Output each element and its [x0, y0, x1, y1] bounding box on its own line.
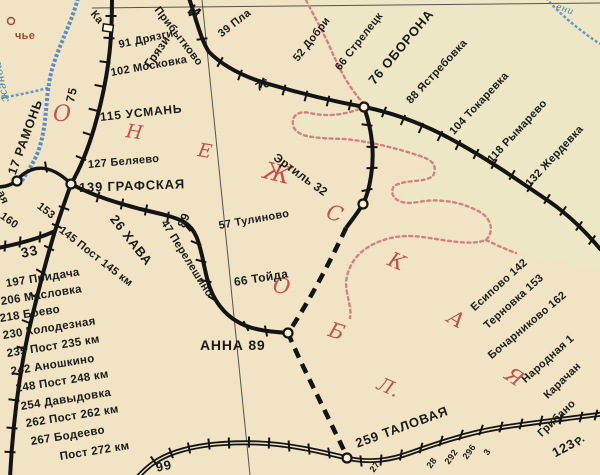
railway-map: ОНЕЖСКАЯОБЛ.чьеронежениПрибытковоИКаГряз… [0, 0, 600, 475]
station-label: 132 Жердевка [524, 124, 586, 189]
oblast-letter: Л. [374, 375, 402, 401]
km-marker: 89 [175, 211, 192, 229]
direction-label: И [184, 3, 204, 23]
oblast-letter: Б [326, 320, 347, 345]
station-label: 26 ХАВА [108, 212, 155, 267]
km-marker: 3 [482, 448, 492, 458]
station-label: 127 Беляево [88, 154, 160, 171]
station-label: 17 РАМОНЬ [6, 98, 45, 177]
km-marker: 28 [425, 456, 438, 470]
station-label: 39 Пла [217, 8, 254, 40]
km-marker: 160 [0, 211, 20, 231]
station-label: Карачан [542, 361, 583, 401]
oblast-letter: К [385, 249, 408, 275]
km-marker: 76 [253, 76, 272, 93]
station-label: 52 Добри [292, 16, 333, 64]
station-label: АННА 89 [200, 338, 266, 352]
km-marker: 292 [443, 448, 460, 466]
station-label: 139 ГРАФСКАЯ [79, 177, 185, 194]
oblast-letter: С [324, 202, 346, 227]
station-label: 88 Ястребовка [405, 38, 470, 106]
km-marker: 27 [368, 460, 381, 474]
oblast-letter: О [53, 104, 71, 126]
station-label: Грибано [536, 398, 578, 439]
km-marker: 99 [155, 458, 173, 474]
station-label: 118 Рымарево [486, 98, 550, 165]
station-label: 115 УСМАНЬ [99, 102, 182, 123]
km-marker: 123 [550, 436, 577, 459]
km-marker: 296 [461, 443, 478, 461]
direction-label: Ка [88, 9, 105, 26]
station-label: 259 ТАЛОВАЯ [354, 404, 450, 450]
km-marker: 33 [20, 243, 40, 260]
settlement-label: чье [15, 31, 35, 42]
oblast-letter: Н [125, 122, 144, 143]
oblast-letter: А [444, 306, 468, 332]
station-label: 104 Токаревка [448, 71, 511, 138]
station-label: 47 Перелешино [158, 219, 214, 300]
station-label: Пост 272 км [59, 441, 130, 463]
river-label: ронеж [0, 60, 12, 103]
station-label: 57 Тулиново [218, 209, 290, 232]
km-marker: 75 [64, 86, 79, 103]
oblast-letter: Е [196, 141, 213, 162]
map-labels: ОНЕЖСКАЯОБЛ.чьеронежениПрибытковоИКаГряз… [0, 0, 600, 475]
km-marker: 153 [35, 201, 57, 222]
station-label: ая [0, 189, 10, 205]
river-label: ени [555, 3, 575, 17]
